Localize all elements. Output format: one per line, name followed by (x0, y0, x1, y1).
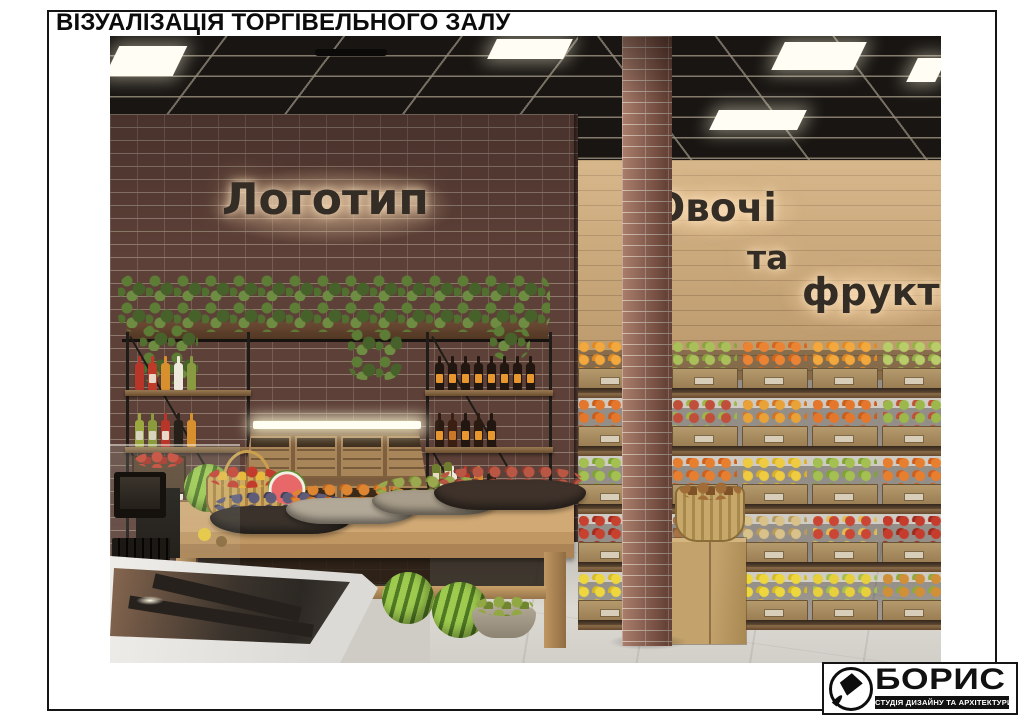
price-tag (905, 494, 923, 500)
bottle-label (149, 431, 156, 440)
produce-crate (812, 400, 878, 452)
price-tag (905, 552, 923, 558)
ceiling-light-panel (709, 110, 807, 130)
crate-opening (343, 488, 383, 497)
bottle-neck (477, 413, 480, 421)
price-tag (835, 610, 853, 616)
bottle-label (462, 431, 469, 440)
pear-bowl (472, 604, 536, 638)
bottle-neck (438, 356, 441, 364)
price-tag (905, 610, 923, 616)
price-tag (695, 436, 713, 442)
refrigerated-counter (110, 544, 410, 663)
produce-crate (812, 516, 878, 568)
bottle (487, 420, 496, 447)
paintbrush-icon (829, 667, 873, 711)
bottle (448, 473, 457, 500)
basket-onions (679, 482, 741, 500)
price-tag (905, 436, 923, 442)
bottle-neck (529, 356, 532, 364)
fridge-light-glint (136, 596, 164, 605)
shelf-board (125, 390, 251, 396)
bottle (448, 363, 457, 390)
price-tag (601, 610, 619, 616)
bottle-neck (464, 466, 467, 474)
shelf-board (425, 390, 553, 396)
produce-crate (882, 342, 941, 394)
bottle-label (436, 374, 443, 383)
bottle (487, 363, 496, 390)
bottle-label (449, 431, 456, 440)
produce-crate (812, 458, 878, 510)
bottle-label (501, 374, 508, 383)
crate-opening (247, 488, 287, 497)
price-tag (601, 378, 619, 384)
crate-slats (297, 449, 335, 474)
price-tag (835, 552, 853, 558)
bottle (474, 420, 483, 447)
ceiling-light-panel (771, 42, 867, 70)
brick-column (622, 36, 672, 646)
crate-opening (251, 438, 289, 447)
bottle-neck (451, 356, 454, 364)
produce-crate (882, 574, 941, 626)
hanging-plants-drop (348, 328, 402, 380)
studio-logo: БОРИС СТУДІЯ ДИЗАЙНУ ТА АРХІТЕКТУРИ (822, 662, 1018, 715)
crate-opening (295, 488, 335, 497)
table-leg (544, 552, 566, 648)
logo-name: БОРИС (875, 663, 1006, 697)
and-sign: та (747, 238, 788, 277)
bottle (187, 420, 196, 447)
fruits-sign: фрукти (802, 270, 941, 314)
bottle (474, 363, 483, 390)
price-tag (835, 436, 853, 442)
bottle-neck (477, 356, 480, 364)
bottle-label (462, 484, 469, 493)
bottle (461, 420, 470, 447)
bottle (161, 363, 170, 390)
price-tag (765, 552, 783, 558)
bottle (474, 473, 483, 500)
price-tag (765, 610, 783, 616)
bottle-neck (190, 356, 193, 364)
price-tag (601, 494, 619, 500)
produce-crate (882, 516, 941, 568)
bottle-neck (464, 413, 467, 421)
bottle-label (488, 374, 495, 383)
price-tag (695, 378, 713, 384)
bottle (148, 420, 157, 447)
bottle (513, 363, 522, 390)
bottle (435, 473, 444, 500)
bottle (448, 420, 457, 447)
bottle-neck (177, 356, 180, 364)
bottle-label (436, 484, 443, 493)
bottle-neck (438, 466, 441, 474)
bottle-neck (138, 413, 141, 421)
bottle-label (475, 431, 482, 440)
produce-crate (672, 400, 738, 452)
produce-crate (812, 342, 878, 394)
wood-cube-stand (672, 538, 746, 644)
bottle-neck (516, 356, 519, 364)
track-light (315, 49, 387, 56)
crate-slats (389, 449, 427, 474)
bottle-neck (164, 356, 167, 364)
crate-opening (297, 438, 335, 447)
price-tag (601, 436, 619, 442)
logo-tagline: СТУДІЯ ДИЗАЙНУ ТА АРХІТЕКТУРИ (875, 696, 1009, 709)
produce-crate (742, 574, 808, 626)
bottle (526, 363, 535, 390)
presentation-page: ВІЗУАЛІЗАЦІЯ ТОРГІВЕЛЬНОГО ЗАЛУ Логотип … (0, 0, 1024, 724)
bottle-label (488, 431, 495, 440)
bottle-label (475, 374, 482, 383)
bottle (435, 420, 444, 447)
price-tag (905, 378, 923, 384)
produce-crate (742, 458, 808, 510)
crate-opening (391, 488, 429, 497)
bottle-neck (477, 466, 480, 474)
bottle-neck (490, 413, 493, 421)
bottle-label (149, 374, 156, 383)
bottle-neck (451, 466, 454, 474)
bottle-neck (164, 413, 167, 421)
bottle-neck (177, 413, 180, 421)
price-tag (765, 378, 783, 384)
bottle-label (436, 431, 443, 440)
bottle-neck (490, 356, 493, 364)
crate-slats (343, 449, 381, 474)
bottle-neck (138, 356, 141, 364)
store-logo-sign: Логотип (222, 174, 429, 225)
bottle (135, 420, 144, 447)
cube-joint (709, 542, 711, 644)
bottle (487, 473, 496, 500)
ceiling-light-panel (487, 39, 573, 59)
price-tag (835, 378, 853, 384)
bottle-neck (503, 356, 506, 364)
display-crate (293, 434, 339, 478)
bottle (135, 363, 144, 390)
produce-crate (672, 342, 738, 394)
brush-shape (838, 672, 864, 698)
produce-crate (812, 574, 878, 626)
produce-crate (742, 342, 808, 394)
price-tag (765, 494, 783, 500)
bottle (187, 363, 196, 390)
produce-crate (742, 516, 808, 568)
render-image: Логотип Овочі та фрукти (110, 36, 941, 663)
bottle (148, 363, 157, 390)
bottle (174, 420, 183, 447)
bottle-label (527, 374, 534, 383)
register-screen (120, 477, 160, 509)
bottle-label (136, 431, 143, 440)
bottle-label (162, 431, 169, 440)
bottle (461, 473, 470, 500)
bottle-label (514, 374, 521, 383)
bottle-neck (490, 466, 493, 474)
display-crate (339, 434, 385, 478)
display-light-strip (253, 421, 421, 429)
bottle-neck (451, 413, 454, 421)
bottle-neck (151, 413, 154, 421)
brush-handle (832, 693, 844, 706)
price-tag (765, 436, 783, 442)
wicker-basket (675, 486, 745, 542)
bottle-label (449, 374, 456, 383)
bottle-neck (190, 413, 193, 421)
bottle-neck (151, 356, 154, 364)
bottle (435, 363, 444, 390)
produce-crate (882, 400, 941, 452)
bottle (461, 363, 470, 390)
page-title: ВІЗУАЛІЗАЦІЯ ТОРГІВЕЛЬНОГО ЗАЛУ (56, 9, 511, 37)
display-crate (247, 434, 293, 478)
pears (475, 596, 533, 616)
crate-slats (251, 449, 289, 474)
produce-crate (742, 400, 808, 452)
bottle (500, 363, 509, 390)
price-tag (835, 494, 853, 500)
bottle-neck (438, 413, 441, 421)
bottle (174, 363, 183, 390)
bottle-label (462, 374, 469, 383)
bottle (161, 420, 170, 447)
crate-opening (343, 438, 381, 447)
shelf-board (425, 447, 553, 453)
produce-crate (882, 458, 941, 510)
price-tag (601, 552, 619, 558)
bottle-neck (464, 356, 467, 364)
